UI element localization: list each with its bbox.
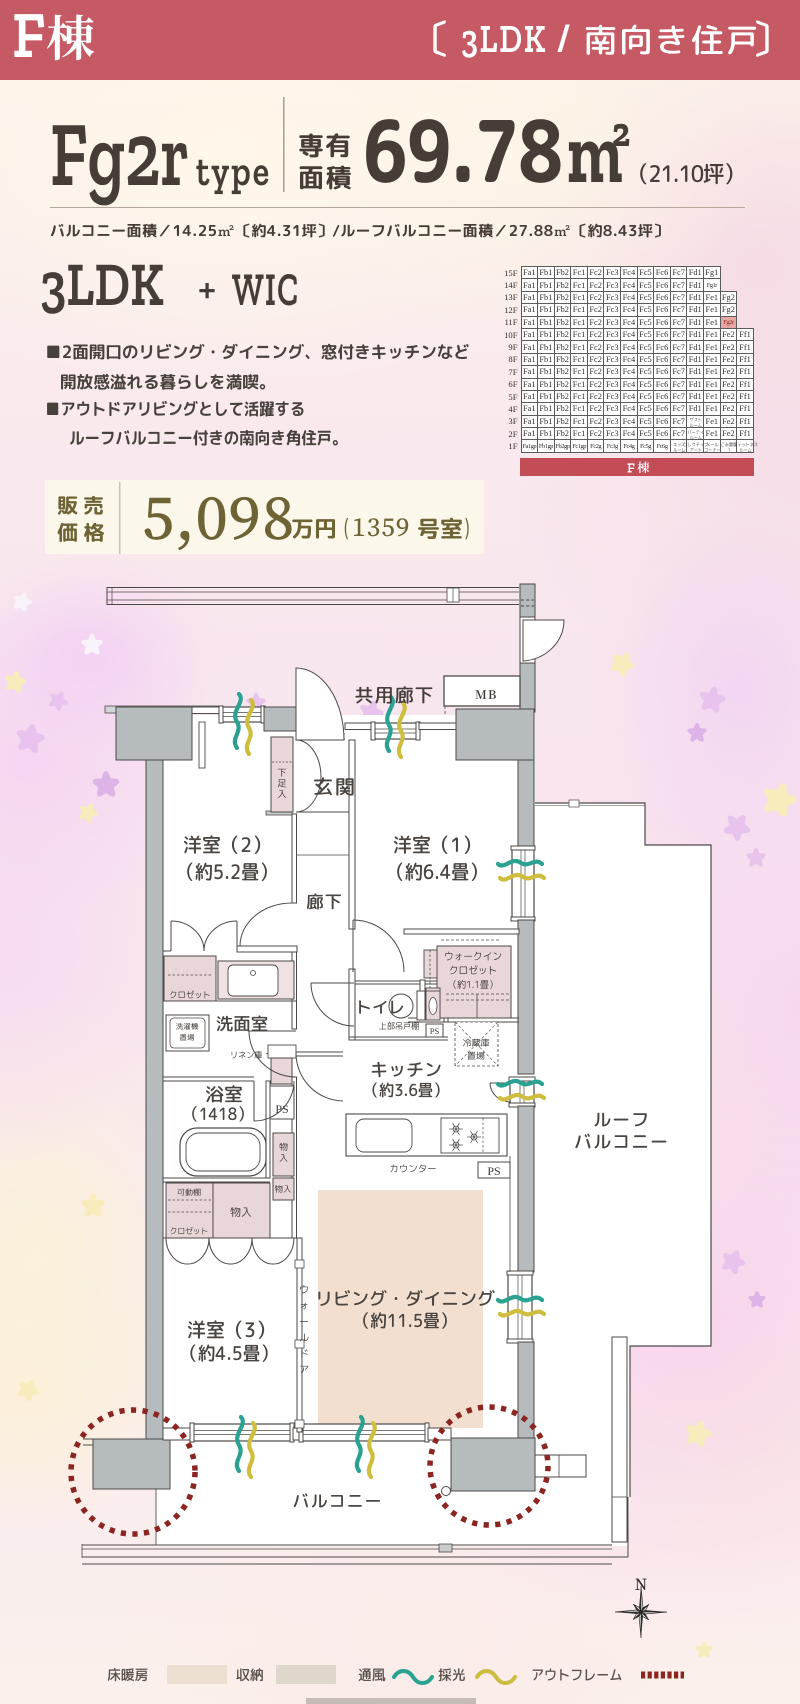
svg-text:PS: PS bbox=[487, 1164, 500, 1178]
svg-text:PS: PS bbox=[430, 1026, 440, 1036]
